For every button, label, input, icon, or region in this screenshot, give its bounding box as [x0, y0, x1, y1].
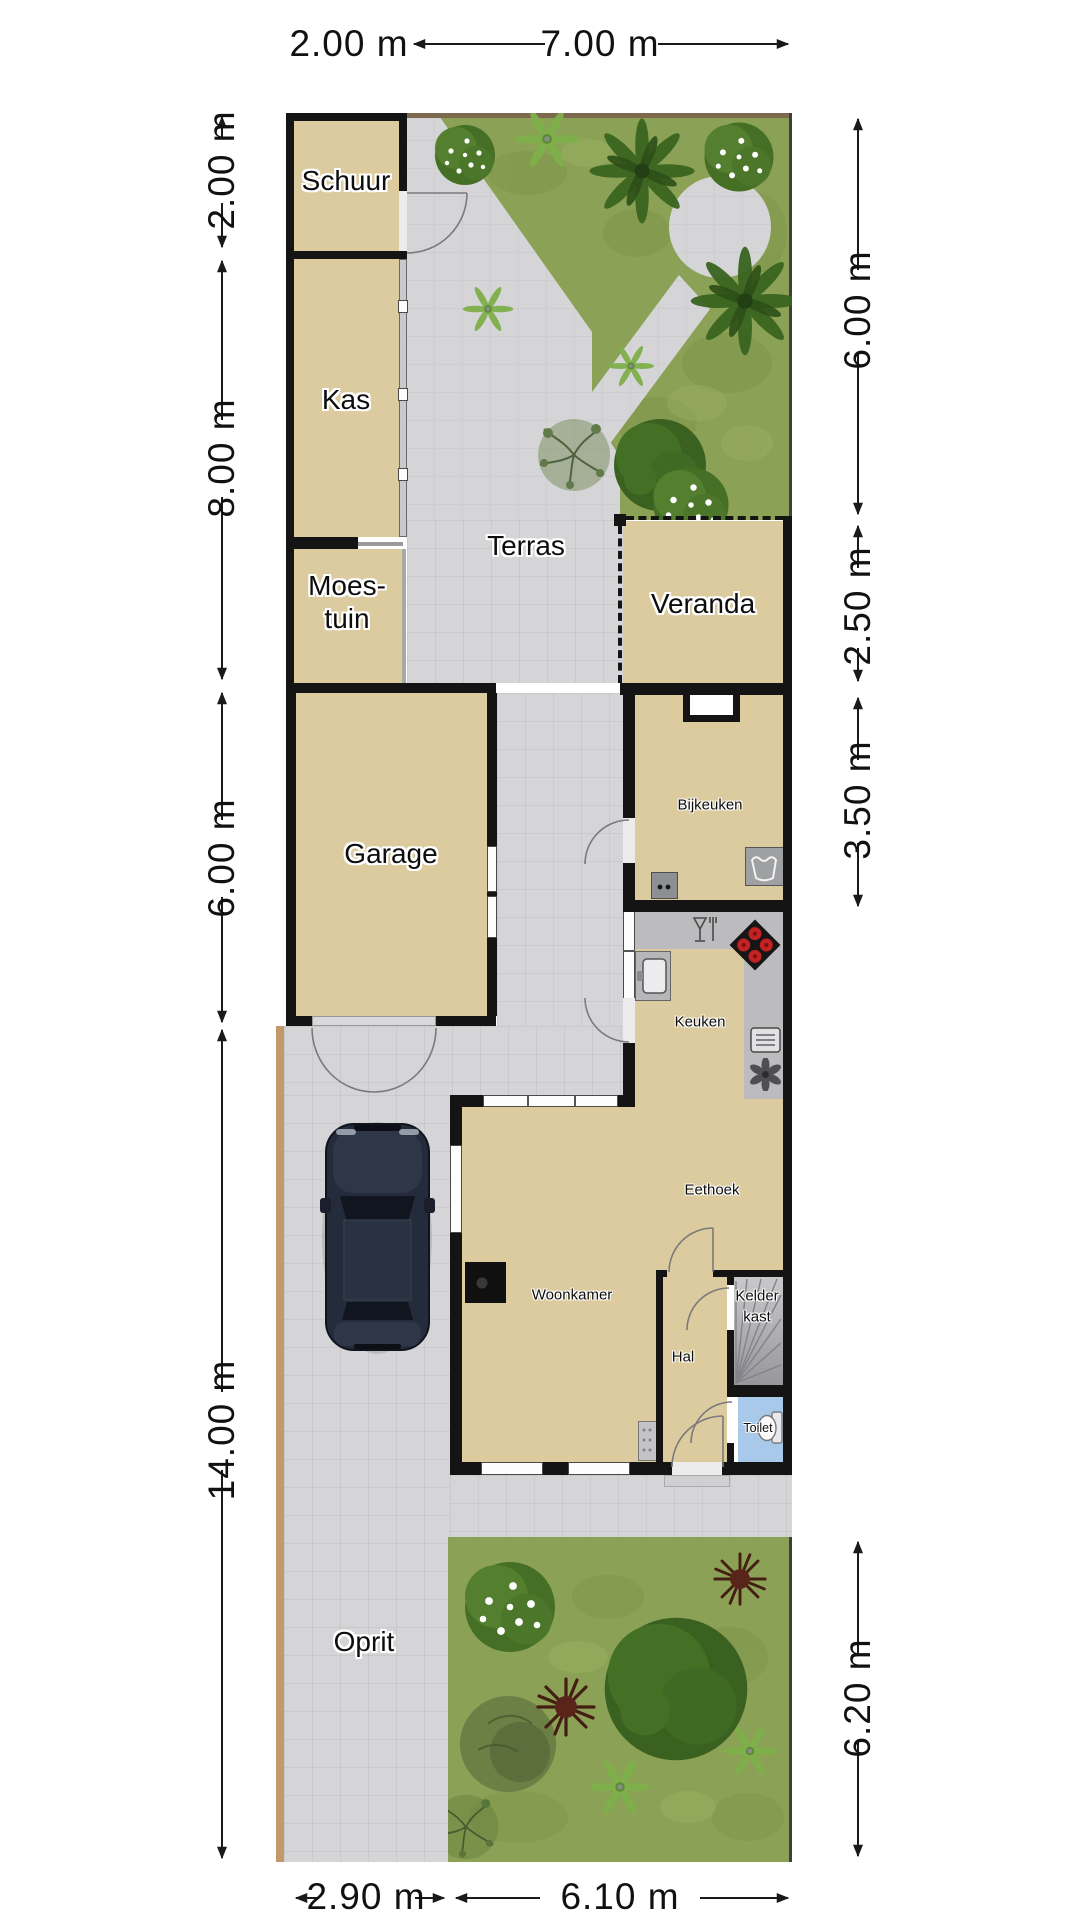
shadow-shrub [460, 1696, 556, 1792]
fence-right [789, 113, 792, 520]
keuken-door-opening [623, 998, 635, 1043]
wall [286, 251, 407, 259]
front-door-opening [672, 1462, 722, 1475]
extractor-fan-icon [749, 1058, 782, 1091]
wall [399, 121, 407, 191]
wall [623, 900, 783, 912]
window [481, 1462, 543, 1475]
wall [286, 683, 496, 693]
room-label-bijkeuken: Bijkeuken [677, 797, 742, 814]
red-spiky-plant [715, 1554, 765, 1604]
twiggy-tree [538, 419, 610, 491]
window [487, 846, 497, 892]
garden-bottom [448, 1537, 792, 1862]
wall [656, 1270, 667, 1277]
dim-label-right-1: 6.00 m [837, 250, 879, 369]
kas-glass-pane [398, 300, 408, 313]
room-label-schuur: Schuur [302, 165, 391, 197]
kas-glass-pane [398, 388, 408, 401]
veranda-dashed-edge [626, 516, 783, 520]
wall [286, 113, 294, 683]
wall [286, 113, 407, 121]
flower-bush [465, 1562, 555, 1652]
veranda-dashed-edge [618, 526, 622, 683]
room-label-terras: Terras [487, 530, 565, 562]
wall [783, 516, 792, 1475]
room-label-eethoek: Eethoek [684, 1182, 739, 1199]
room-label-hal: Hal [672, 1349, 695, 1366]
flower-bush [435, 125, 495, 185]
wall [286, 537, 358, 549]
wall [713, 1270, 783, 1277]
front-path-paving [450, 1475, 792, 1537]
window [568, 1462, 630, 1475]
room-label-kas: Kas [322, 384, 370, 416]
room-label-oprit: Oprit [334, 1626, 395, 1658]
veranda-corner-post [614, 514, 626, 526]
dim-label-bottom-1: 2.90 m [306, 1876, 425, 1918]
microwave-icon [749, 1024, 782, 1056]
floor-plan: Schuur Kas Moes- tuin Terras Veranda Gar… [0, 0, 1080, 1920]
wall [286, 693, 296, 1026]
fence-top [407, 113, 792, 118]
room-label-keuken: Keuken [675, 1014, 726, 1031]
palm-tree [590, 119, 695, 224]
wall [623, 863, 635, 905]
room-label-kelderkast-1: Kelder [735, 1288, 778, 1305]
room-label-kelderkast-2: kast [743, 1309, 771, 1326]
radiator-cabinet-icon [638, 1421, 657, 1461]
boiler-icon [651, 872, 678, 899]
wall [656, 1277, 663, 1462]
dim-label-left-2: 8.00 m [201, 398, 243, 517]
wall [623, 695, 635, 818]
dishes-icon [689, 914, 721, 946]
dim-label-right-4: 6.20 m [837, 1638, 879, 1757]
dim-label-left-3: 6.00 m [201, 798, 243, 917]
window [450, 1145, 462, 1233]
porch-step [664, 1475, 730, 1487]
dim-label-bottom-2: 6.10 m [560, 1876, 679, 1918]
room-label-moestuin-2: tuin [324, 603, 369, 635]
kas-glass-pane [398, 468, 408, 481]
window-mullion [623, 950, 635, 952]
dim-label-left-4: 14.00 m [201, 1360, 243, 1501]
wall [727, 1277, 734, 1285]
schuur-door-opening [399, 191, 407, 251]
moestuin-fence [402, 549, 406, 683]
window-mullion [574, 1095, 576, 1107]
dim-label-top-2: 7.00 m [540, 23, 659, 65]
room-label-garage: Garage [344, 838, 437, 870]
stove-icon [727, 917, 783, 973]
red-spiky-plant [538, 1679, 594, 1735]
garden-top [407, 113, 792, 520]
wall [620, 683, 792, 695]
kas-sliding-door [358, 540, 403, 546]
dim-label-right-2: 2.50 m [837, 546, 879, 665]
flower-bush [705, 123, 774, 192]
car [320, 1118, 435, 1356]
garden-path-circle [669, 176, 771, 278]
bijkeuken-door-opening [623, 818, 635, 863]
room-label-toilet: Toilet [743, 1421, 772, 1435]
hal-floor [663, 1277, 727, 1462]
fireplace-icon [465, 1262, 506, 1303]
room-label-moestuin-1: Moes- [308, 570, 386, 602]
kitchen-sink-icon [635, 951, 671, 1001]
fence-right [789, 1537, 792, 1862]
wall [727, 1443, 734, 1462]
wall-niche-inset [690, 695, 733, 715]
driveway-top-paving [284, 1026, 623, 1095]
washing-machine-icon [745, 847, 784, 886]
dim-label-left-1: 2.00 m [201, 110, 243, 229]
window [483, 1095, 618, 1107]
window [487, 896, 497, 938]
wall [727, 1330, 734, 1385]
window-mullion [527, 1095, 529, 1107]
dim-label-top-1: 2.00 m [289, 23, 408, 65]
room-label-woonkamer: Woonkamer [532, 1287, 613, 1304]
wall [727, 1385, 783, 1397]
driveway-edge-strip [276, 1026, 284, 1862]
dim-label-right-3: 3.50 m [837, 740, 879, 859]
garage-door-panel [312, 1016, 436, 1026]
big-bush [605, 1618, 748, 1761]
room-label-veranda: Veranda [651, 588, 755, 620]
